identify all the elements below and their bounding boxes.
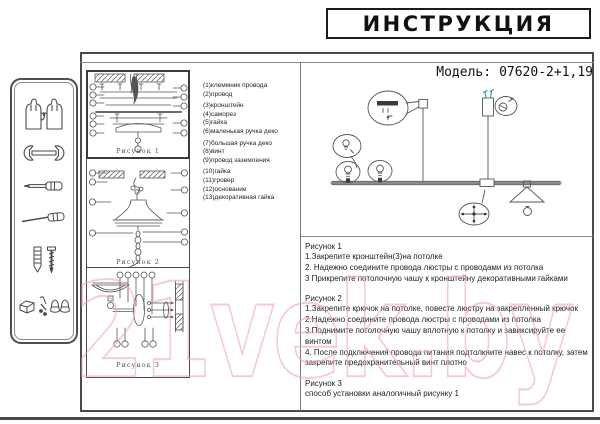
mounting-hardware-icon [17, 292, 71, 320]
figure1-ceiling-mount-diagram [87, 71, 190, 159]
instruction-step: 2. Надежно соедините провода люстры с пр… [305, 263, 590, 274]
instruction-step: 1.Закрепите крючок на потолке, повесте л… [305, 304, 590, 315]
wrench-icon [21, 144, 67, 162]
parts-list-item: (8)винт [203, 148, 299, 156]
instruction-figure-heading: Рисунок 1 [305, 241, 590, 252]
gloves-icon [23, 96, 65, 132]
scan-bottom-edge [0, 417, 600, 420]
instruction-step: 3.Поднимите потолочную чашу вплотную к п… [305, 326, 590, 348]
parts-list-item: (5)гайка [203, 119, 299, 127]
awl-icon [20, 209, 68, 225]
figure2-hook-chandelier-diagram [87, 159, 190, 267]
parts-list-item: (10)гайка [203, 168, 299, 176]
parts-list: (1)клеммник провода(2)провод(3)кронштейн… [203, 82, 299, 203]
instruction-step: 2.Надежно соедините провода люстры с про… [305, 315, 590, 326]
instruction-block: Рисунок 1 1.Закрепите кронштейн(3)на пот… [305, 241, 590, 284]
parts-list-item: (3)кронштейн [203, 102, 299, 110]
instructions: Рисунок 1 1.Закрепите кронштейн(3)на пот… [305, 241, 590, 409]
parts-list-item: (11)гровер [203, 177, 299, 185]
parts-list-item: (1)клеммник провода [203, 82, 299, 90]
figures-column: Рисунок 1 [86, 70, 190, 378]
parts-list-item: (13)декоративная гайка [203, 194, 299, 202]
instruction-figure-heading: Рисунок 2 [305, 293, 590, 304]
diagram-divider-line [301, 236, 593, 237]
screwdriver-icon [22, 179, 66, 193]
header-divider-line [80, 62, 594, 63]
parts-list-item: (12)основание [203, 186, 299, 194]
instruction-sheet-page: ИНСТРУКЦИЯ Модель:07620-2+1,19 [0, 0, 600, 424]
instruction-step: 1.Закрепите кронштейн(3)на потолке [305, 252, 590, 263]
instruction-steps: 1.Закрепите крючок на потолке, повесте л… [305, 304, 590, 369]
parts-list-item: (7)большая ручка деко [203, 140, 299, 148]
instruction-figure-heading: Рисунок 3 [305, 378, 590, 389]
instruction-step: 3 Прикрепите потолочную чашу к кронштейн… [305, 274, 590, 285]
page-title: ИНСТРУКЦИЯ [363, 12, 555, 36]
title-box: ИНСТРУКЦИЯ [326, 8, 591, 39]
wall-plug-and-screw-icon [28, 245, 60, 275]
parts-list-item: (9)провод заземления [203, 157, 299, 165]
parts-list-item: (4)саморез [203, 111, 299, 119]
figure3-caption: Рисунок 3 [87, 361, 189, 369]
model-value: 07620-2+1,19 [499, 65, 593, 80]
linear-chandelier-assembly-diagram [302, 86, 592, 234]
instruction-step: способ установки аналогичный рисунку 1 [305, 389, 590, 400]
instruction-step: 4. После подключения провода питания под… [305, 348, 590, 370]
instruction-block: Рисунок 2 1.Закрепите крючок на потолке,… [305, 293, 590, 369]
figure1-caption: Рисунок 1 [87, 147, 189, 155]
tools-sidebar [10, 78, 78, 344]
model-label: Модель: [436, 65, 491, 80]
instruction-block: Рисунок 3 способ установки аналогичный р… [305, 378, 590, 400]
figure2-caption: Рисунок 2 [87, 258, 189, 266]
model-line: Модель:07620-2+1,19 [310, 65, 593, 80]
instruction-steps: способ установки аналогичный рисунку 1 [305, 389, 590, 400]
parts-list-item: (6)маленькая ручка деко [203, 128, 299, 136]
parts-list-item: (2)провод [203, 91, 299, 99]
instruction-steps: 1.Закрепите кронштейн(3)на потолке2. Над… [305, 252, 590, 284]
